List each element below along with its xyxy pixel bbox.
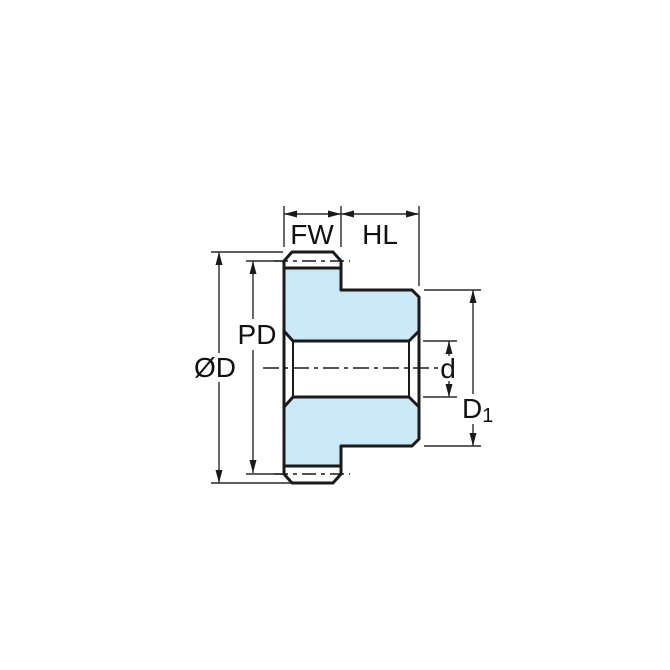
arrow-hl-right [406,211,419,218]
top-tooth-profile [284,252,341,268]
lower-section-fill [284,397,419,466]
arrow-fw-right [328,211,341,218]
arrow-d1-top [470,290,477,303]
label-hub-length: HL [362,219,398,250]
arrow-d-bottom [446,384,453,397]
label-hub-diameter: D1 [462,393,493,427]
arrow-d1-bottom [470,433,477,446]
arrow-fw-left [284,211,297,218]
arrow-pd-bottom [250,460,257,473]
label-hub-diameter-subscript: 1 [482,405,493,427]
label-face-width: FW [290,219,334,250]
label-hub-diameter-main: D [462,393,482,424]
upper-section-fill [284,268,419,341]
label-pitch-diameter: PD [238,319,277,350]
arrow-hl-left [341,211,354,218]
arrow-od-bottom [216,470,223,483]
arrow-pd-top [250,261,257,274]
arrow-od-top [216,252,223,265]
drawing-svg: FW HL PD ØD d D1 [0,0,670,670]
label-bore-diameter: d [440,353,456,384]
gear-dimension-drawing: FW HL PD ØD d D1 [0,0,670,670]
label-outer-diameter: ØD [194,352,236,383]
